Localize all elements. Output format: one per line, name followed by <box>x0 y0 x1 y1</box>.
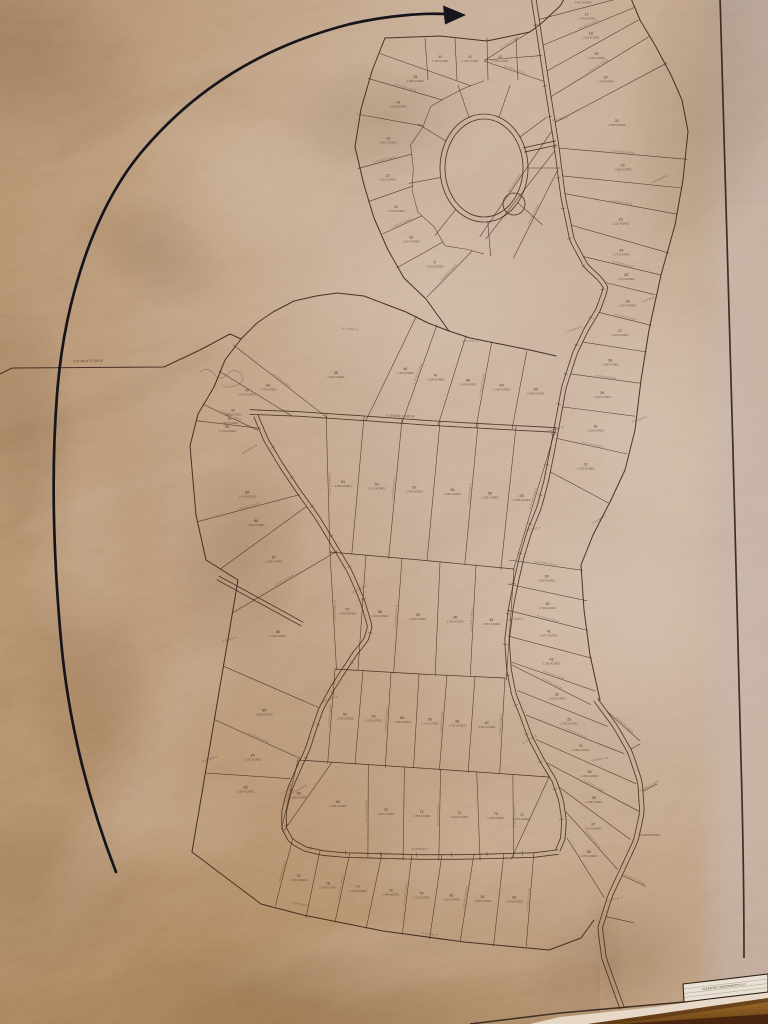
svg-text:1.564 ACRES: 1.564 ACRES <box>237 790 254 794</box>
svg-text:41: 41 <box>468 55 472 59</box>
svg-text:1.375 ACRES: 1.375 ACRES <box>259 387 276 391</box>
svg-text:1.420 ACRES: 1.420 ACRES <box>611 333 628 337</box>
svg-text:1.857 ACRES: 1.857 ACRES <box>483 622 500 626</box>
svg-text:1.845 ACRES: 1.845 ACRES <box>409 617 426 621</box>
svg-text:1.636 ACRES: 1.636 ACRES <box>327 375 344 379</box>
svg-text:1.102 ACRES: 1.102 ACRES <box>577 467 594 471</box>
svg-text:1.837 ACRES: 1.837 ACRES <box>540 634 557 638</box>
svg-text:1.464 ACRES: 1.464 ACRES <box>382 892 399 896</box>
svg-text:1.914 ACRES: 1.914 ACRES <box>506 900 523 904</box>
svg-text:1.505 ACRES: 1.505 ACRES <box>427 377 444 381</box>
svg-text:1.145 ACRES: 1.145 ACRES <box>459 383 476 387</box>
svg-text:1.449 ACRES: 1.449 ACRES <box>584 827 601 831</box>
svg-text:1.915 ACRES: 1.915 ACRES <box>538 579 555 583</box>
svg-text:1.162 ACRES: 1.162 ACRES <box>350 889 367 893</box>
svg-text:1.731 ACRES: 1.731 ACRES <box>588 56 605 60</box>
svg-text:1.289 ACRES: 1.289 ACRES <box>560 721 577 725</box>
svg-text:1.976 ACRES: 1.976 ACRES <box>319 886 336 890</box>
svg-text:1.108 ACRES: 1.108 ACRES <box>329 804 346 808</box>
svg-text:1.431 ACRES: 1.431 ACRES <box>513 817 530 821</box>
svg-text:1.047 ACRES: 1.047 ACRES <box>368 486 385 490</box>
svg-text:1.378 ACRES: 1.378 ACRES <box>597 80 614 84</box>
svg-text:1.401 ACRES: 1.401 ACRES <box>379 141 396 145</box>
svg-text:1.393 ACRES: 1.393 ACRES <box>337 717 354 721</box>
svg-text:1.865 ACRES: 1.865 ACRES <box>474 899 491 903</box>
svg-text:40: 40 <box>438 55 442 59</box>
svg-text:1.718 ACRES: 1.718 ACRES <box>219 429 236 433</box>
svg-text:1.528 ACRES: 1.528 ACRES <box>614 168 631 172</box>
svg-text:1.889 ACRES: 1.889 ACRES <box>527 392 544 396</box>
svg-text:1.046 ACRES: 1.046 ACRES <box>492 59 509 63</box>
svg-text:1.857 ACRES: 1.857 ACRES <box>575 1 592 5</box>
svg-text:1.427 ACRES: 1.427 ACRES <box>619 304 636 308</box>
svg-text:1.102 ACRES: 1.102 ACRES <box>365 718 382 722</box>
svg-text:1.212 ACRES: 1.212 ACRES <box>379 177 396 181</box>
svg-text:1.528 ACRES: 1.528 ACRES <box>587 429 604 433</box>
svg-text:1.425 ACRES: 1.425 ACRES <box>450 815 467 819</box>
svg-text:1.368 ACRES: 1.368 ACRES <box>582 36 599 40</box>
svg-text:1.470 ACRES: 1.470 ACRES <box>239 495 256 499</box>
svg-text:1.678 ACRES: 1.678 ACRES <box>513 498 530 502</box>
svg-text:1.273 ACRES: 1.273 ACRES <box>618 277 635 281</box>
svg-text:1.580 ACRES: 1.580 ACRES <box>407 79 424 83</box>
svg-text:1.265 ACRES: 1.265 ACRES <box>447 619 464 623</box>
svg-text:1.956 ACRES: 1.956 ACRES <box>334 484 351 488</box>
svg-text:1.912 ACRES: 1.912 ACRES <box>413 895 430 899</box>
svg-text:1.893 ACRES: 1.893 ACRES <box>339 612 356 616</box>
svg-text:1.592 ACRES: 1.592 ACRES <box>543 662 560 666</box>
svg-text:1.308 ACRES: 1.308 ACRES <box>572 748 589 752</box>
svg-text:N 15°39'29" E: N 15°39'29" E <box>412 847 428 851</box>
svg-text:1.046 ACRES: 1.046 ACRES <box>462 59 479 63</box>
svg-text:1.138 ACRES: 1.138 ACRES <box>493 388 510 392</box>
svg-text:1.796 ACRES: 1.796 ACRES <box>406 490 423 494</box>
svg-text:1.245 ACRES: 1.245 ACRES <box>394 720 411 724</box>
svg-text:1.252 ACRES: 1.252 ACRES <box>449 723 466 727</box>
svg-text:1.206 ACRES: 1.206 ACRES <box>548 697 565 701</box>
svg-text:1.341 ACRES: 1.341 ACRES <box>578 17 595 21</box>
svg-text:1.567 ACRES: 1.567 ACRES <box>580 854 597 858</box>
svg-text:1.501 ACRES: 1.501 ACRES <box>478 725 495 729</box>
svg-text:1.039 ACRES: 1.039 ACRES <box>265 560 282 564</box>
svg-text:1.556 ACRES: 1.556 ACRES <box>256 713 273 717</box>
svg-text:1.392 ACRES: 1.392 ACRES <box>397 371 414 375</box>
svg-text:1.759 ACRES: 1.759 ACRES <box>413 814 430 818</box>
svg-text:1.360 ACRES: 1.360 ACRES <box>290 796 307 800</box>
svg-text:1.958 ACRES: 1.958 ACRES <box>601 363 618 367</box>
svg-text:1.119 ACRES: 1.119 ACRES <box>390 105 407 109</box>
svg-text:1.615 ACRES: 1.615 ACRES <box>426 264 443 268</box>
svg-text:1.124 ACRES: 1.124 ACRES <box>421 721 438 725</box>
svg-text:1.912 ACRES: 1.912 ACRES <box>593 395 610 399</box>
svg-text:1.604 ACRES: 1.604 ACRES <box>402 240 419 244</box>
svg-text:N 74°19'16" E 204.26: N 74°19'16" E 204.26 <box>366 799 368 822</box>
svg-text:1.563 ACRES: 1.563 ACRES <box>225 412 242 416</box>
svg-text:1.046 ACRES: 1.046 ACRES <box>432 59 449 63</box>
svg-text:1.219 ACRES: 1.219 ACRES <box>443 897 460 901</box>
svg-text:1.175 ACRES: 1.175 ACRES <box>244 757 261 761</box>
svg-text:1.169 ACRES: 1.169 ACRES <box>585 800 602 804</box>
svg-text:S 67°36'14" E 504.50: S 67°36'14" E 504.50 <box>73 359 104 364</box>
svg-text:1.278 ACRES: 1.278 ACRES <box>238 393 255 397</box>
svg-text:1.550 ACRES: 1.550 ACRES <box>221 421 238 425</box>
svg-text:1.152 ACRES: 1.152 ACRES <box>612 221 629 225</box>
svg-text:1.716 ACRES: 1.716 ACRES <box>539 606 556 610</box>
svg-text:1.542 ACRES: 1.542 ACRES <box>269 634 286 638</box>
svg-text:1.674 ACRES: 1.674 ACRES <box>388 209 405 213</box>
svg-text:1.628 ACRES: 1.628 ACRES <box>608 123 625 127</box>
svg-text:1.840 ACRES: 1.840 ACRES <box>377 812 394 816</box>
svg-text:1.325 ACRES: 1.325 ACRES <box>481 496 498 500</box>
svg-text:1.913 ACRES: 1.913 ACRES <box>247 523 264 527</box>
svg-text:1.219 ACRES: 1.219 ACRES <box>371 614 388 618</box>
svg-text:1.560 ACRES: 1.560 ACRES <box>444 492 461 496</box>
svg-text:1.494 ACRES: 1.494 ACRES <box>487 816 504 820</box>
svg-text:1.024 ACRES: 1.024 ACRES <box>581 774 598 778</box>
svg-text:1.787 ACRES: 1.787 ACRES <box>290 878 307 882</box>
svg-text:1.776 ACRES: 1.776 ACRES <box>613 252 630 256</box>
